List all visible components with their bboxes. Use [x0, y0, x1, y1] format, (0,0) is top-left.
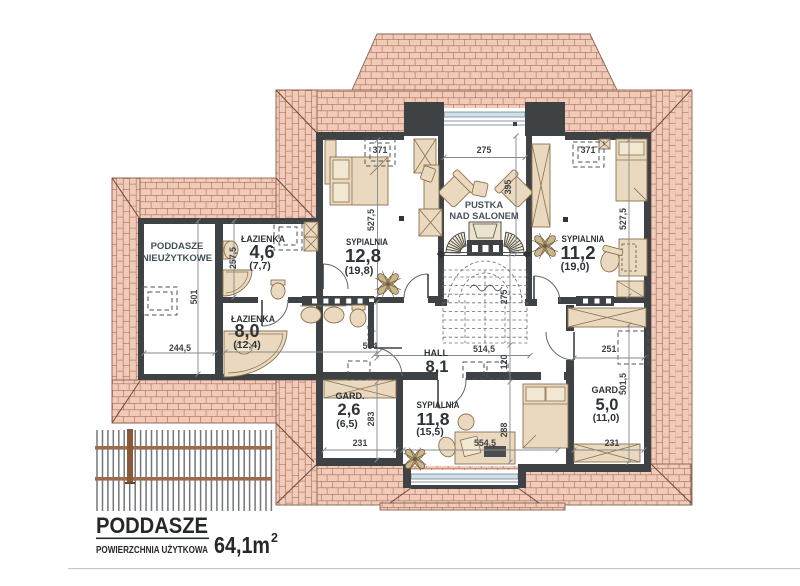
svg-text:HALL: HALL — [424, 348, 448, 358]
svg-text:514,5: 514,5 — [473, 344, 495, 354]
svg-text:NAD SALONEM: NAD SALONEM — [449, 211, 518, 221]
svg-text:206,5: 206,5 — [366, 325, 376, 347]
svg-text:231: 231 — [605, 438, 620, 448]
svg-text:(11,0): (11,0) — [593, 412, 620, 424]
svg-text:64,1m: 64,1m — [214, 532, 270, 558]
svg-text:PODDASZE: PODDASZE — [151, 241, 204, 252]
svg-text:(19,8): (19,8) — [345, 265, 374, 277]
svg-text:501,5: 501,5 — [618, 373, 628, 395]
svg-text:8,1: 8,1 — [426, 358, 449, 376]
svg-text:12,8: 12,8 — [345, 245, 381, 266]
svg-text:371: 371 — [581, 145, 596, 155]
svg-text:PODDASZE: PODDASZE — [96, 513, 208, 538]
svg-text:231: 231 — [353, 438, 368, 448]
svg-text:244,5: 244,5 — [169, 343, 191, 353]
svg-text:283: 283 — [366, 412, 376, 427]
svg-text:371: 371 — [373, 145, 388, 155]
svg-text:257,5: 257,5 — [228, 247, 238, 269]
svg-text:(7,7): (7,7) — [249, 260, 271, 272]
svg-text:527,5: 527,5 — [366, 209, 376, 231]
svg-text:PUSTKA: PUSTKA — [465, 200, 504, 210]
svg-text:(19,0): (19,0) — [561, 261, 590, 273]
svg-text:275: 275 — [499, 290, 509, 305]
svg-text:554,5: 554,5 — [474, 438, 496, 448]
svg-text:GARD.: GARD. — [592, 385, 621, 395]
svg-text:GARD.: GARD. — [336, 391, 365, 401]
svg-text:120: 120 — [499, 355, 509, 370]
svg-text:(12,4): (12,4) — [233, 339, 260, 351]
svg-text:POWIERZCHNIA UŻYTKOWA: POWIERZCHNIA UŻYTKOWA — [96, 545, 208, 556]
svg-text:4,6: 4,6 — [249, 242, 274, 262]
svg-text:501: 501 — [189, 290, 199, 305]
svg-text:(15,5): (15,5) — [416, 426, 443, 438]
svg-text:288: 288 — [499, 423, 509, 438]
svg-text:8,0: 8,0 — [234, 321, 259, 341]
svg-text:251: 251 — [602, 344, 617, 354]
svg-text:275: 275 — [477, 145, 492, 155]
svg-text:NIEUŻYTKOWE: NIEUŻYTKOWE — [142, 253, 212, 264]
svg-text:(6,5): (6,5) — [336, 418, 358, 430]
svg-text:2: 2 — [271, 531, 278, 545]
svg-text:527,5: 527,5 — [618, 208, 628, 230]
svg-text:2,6: 2,6 — [338, 401, 361, 419]
svg-text:395: 395 — [503, 180, 513, 195]
svg-text:11,2: 11,2 — [561, 242, 596, 263]
